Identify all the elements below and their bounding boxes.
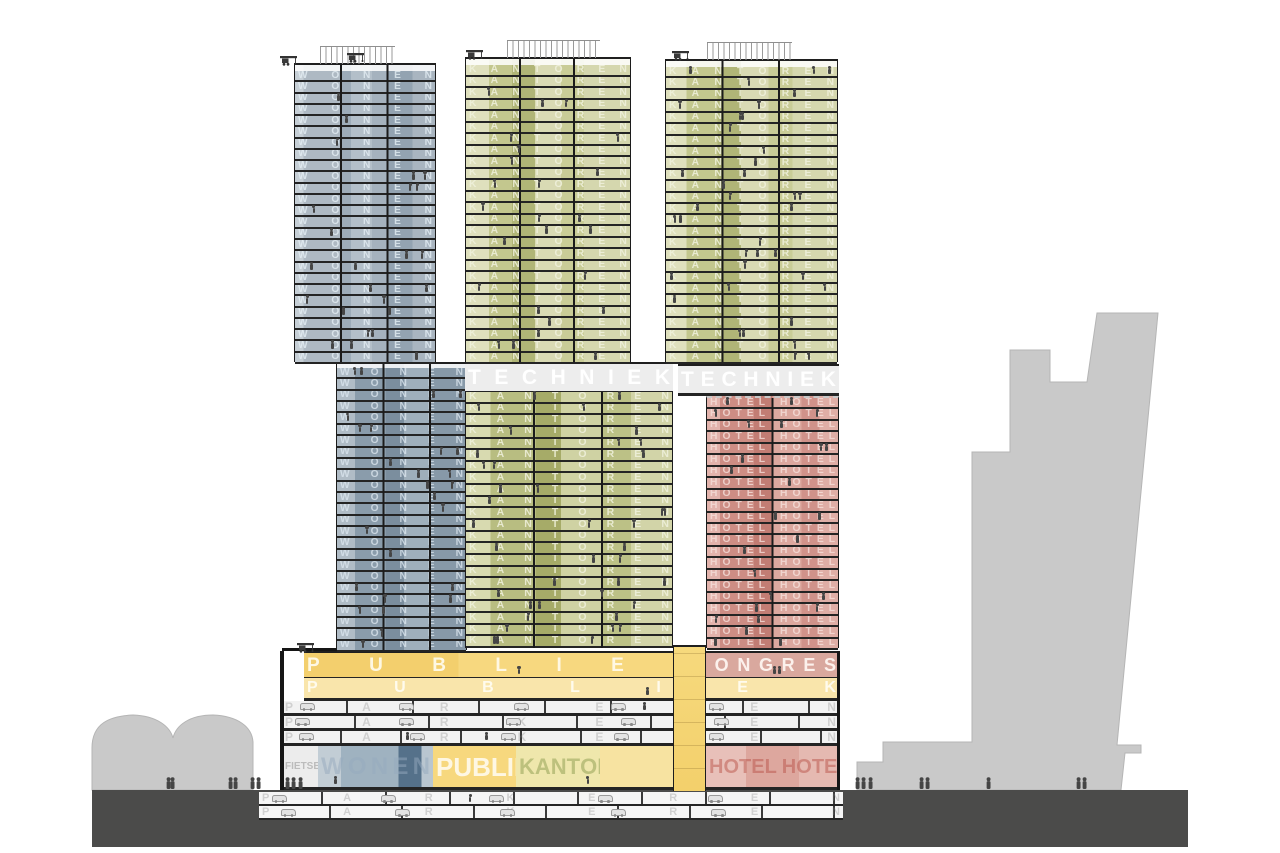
label-letter: N bbox=[425, 263, 432, 272]
label-letter: R bbox=[782, 318, 789, 327]
floor-row: HOTEL HOTEL bbox=[707, 398, 838, 409]
label-letter: R bbox=[782, 204, 789, 213]
label-letter: N bbox=[456, 504, 463, 513]
label-letter: K bbox=[669, 227, 676, 236]
label-letter: O bbox=[715, 656, 729, 674]
person-figure bbox=[818, 514, 821, 520]
label-letter: N bbox=[399, 572, 406, 581]
person-figure bbox=[617, 580, 620, 586]
label-letter: R bbox=[669, 807, 677, 818]
label-letter: H bbox=[780, 593, 787, 602]
label-letter: E bbox=[598, 318, 605, 328]
label-letter: T bbox=[552, 392, 558, 402]
zone-label: WONEN bbox=[337, 402, 466, 411]
label-letter: A bbox=[692, 273, 699, 282]
person-figure bbox=[589, 228, 592, 234]
floor-row: WONEN bbox=[337, 459, 466, 470]
label-letter: N bbox=[399, 482, 406, 491]
label-letter: P bbox=[307, 680, 318, 696]
label-letter: T bbox=[552, 450, 558, 460]
zone-label: WONEN bbox=[337, 413, 466, 422]
zone-label: KANTOREN bbox=[466, 307, 630, 317]
label-letter: W bbox=[340, 572, 350, 581]
floor-row: KANTOREN bbox=[466, 450, 672, 462]
person-figure bbox=[354, 264, 357, 270]
label-letter: E bbox=[598, 272, 605, 282]
label-letter: T bbox=[737, 318, 743, 327]
zone-label: KANTOREN bbox=[466, 567, 672, 577]
label-letter: E bbox=[634, 532, 641, 542]
person-figure bbox=[548, 320, 551, 326]
label-letter: K bbox=[469, 404, 477, 414]
label-letter: N bbox=[827, 238, 834, 247]
label-letter: E bbox=[598, 330, 605, 340]
label-letter: K bbox=[469, 613, 477, 623]
label-letter: O bbox=[554, 123, 562, 133]
label-letter: N bbox=[827, 193, 834, 202]
zone-label: WONEN bbox=[337, 493, 466, 502]
label-letter: E bbox=[804, 295, 811, 304]
label-letter: T bbox=[534, 318, 540, 328]
label-letter: R bbox=[607, 497, 615, 507]
label-letter: E bbox=[634, 590, 641, 600]
floor-row: WONEN bbox=[337, 629, 466, 640]
label-letter: O bbox=[554, 272, 562, 282]
floor-row: WONEN bbox=[337, 413, 466, 424]
label-letter: K bbox=[469, 636, 477, 646]
label-letter: N bbox=[399, 618, 406, 627]
label-letter: N bbox=[524, 462, 532, 472]
label-letter: E bbox=[634, 497, 641, 507]
label-letter: O bbox=[578, 439, 586, 449]
label-letter: K bbox=[669, 204, 676, 213]
person-figure bbox=[681, 172, 684, 178]
floor-row: HOTEL HOTEL bbox=[707, 558, 838, 569]
label-letter: E bbox=[598, 88, 605, 98]
person-figure bbox=[538, 604, 541, 610]
floor-row: WONEN bbox=[295, 229, 435, 240]
zone-label: KANTOREN bbox=[466, 520, 672, 530]
floor-row: KANTOREN bbox=[666, 341, 837, 352]
label-letter: N bbox=[619, 307, 626, 317]
car-icon bbox=[506, 718, 521, 725]
label-letter: W bbox=[298, 116, 308, 125]
label-letter: L bbox=[495, 656, 507, 675]
label-letter: N bbox=[425, 150, 432, 159]
label-letter: O bbox=[759, 295, 767, 304]
label-letter: E bbox=[394, 218, 401, 227]
label-letter: N bbox=[456, 572, 463, 581]
floor-row: KANTOREN bbox=[666, 273, 837, 284]
person-figure bbox=[251, 781, 254, 788]
label-letter: R bbox=[607, 532, 615, 542]
zone-label: HOTEL HOTEL bbox=[707, 490, 838, 499]
person-figure bbox=[1083, 781, 1086, 788]
floor-row: KANTOREN bbox=[666, 261, 837, 272]
label-letter: N bbox=[512, 249, 519, 259]
label-letter: R bbox=[782, 295, 789, 304]
label-letter: E bbox=[428, 538, 435, 547]
person-figure bbox=[825, 446, 828, 452]
label-letter: A bbox=[692, 238, 699, 247]
floor-row: PUBLIEK bbox=[433, 746, 516, 790]
person-figure bbox=[354, 370, 357, 376]
label-letter: N bbox=[714, 238, 721, 247]
zone-label: HOTEL HOTEL bbox=[707, 616, 838, 625]
zone-label: HOTEL HOTEL bbox=[707, 593, 838, 602]
label-letter: O bbox=[759, 124, 767, 133]
label-letter: P bbox=[262, 807, 269, 818]
label-letter: N bbox=[827, 227, 834, 236]
label-letter: N bbox=[827, 170, 834, 179]
label-letter: A bbox=[692, 113, 699, 122]
zone-label: WONEN bbox=[337, 470, 466, 479]
car-icon bbox=[501, 733, 516, 740]
person-figure bbox=[612, 627, 615, 633]
plinth-right-wall bbox=[837, 651, 840, 790]
label-letter: K bbox=[469, 272, 476, 282]
label-letter: N bbox=[512, 318, 519, 328]
bmu-crane-icon bbox=[672, 47, 696, 67]
floor-row: KANTOREN bbox=[466, 625, 672, 637]
label-letter: E bbox=[428, 402, 435, 411]
label-letter: K bbox=[469, 134, 476, 144]
label-letter: K bbox=[469, 318, 476, 328]
label-letter: T bbox=[806, 455, 812, 464]
car-icon bbox=[281, 809, 296, 816]
person-figure bbox=[383, 298, 386, 304]
zone-label: PARKEREN bbox=[282, 731, 839, 743]
person-figure bbox=[744, 263, 747, 269]
label-letter: N bbox=[363, 308, 370, 317]
label-letter: E bbox=[817, 616, 824, 625]
zone-label: WONEN bbox=[295, 319, 435, 328]
label-letter: E bbox=[817, 398, 824, 407]
label-letter: N bbox=[714, 341, 721, 350]
zone-label: KANTOREN bbox=[466, 404, 672, 414]
label-letter: E bbox=[800, 369, 814, 390]
label-letter: H bbox=[710, 398, 717, 407]
floor-row: HOTEL HOTEL bbox=[707, 444, 838, 455]
label-letter: T bbox=[534, 169, 540, 179]
person-figure bbox=[485, 735, 488, 741]
label-letter: T bbox=[737, 193, 743, 202]
label-letter: T bbox=[735, 604, 741, 613]
floor-row: HOTEL HOTEL bbox=[707, 570, 838, 581]
label-letter: K bbox=[669, 261, 676, 270]
label-letter: O bbox=[759, 261, 767, 270]
label-letter: N bbox=[456, 425, 463, 434]
label-letter: O bbox=[792, 593, 800, 602]
label-letter: E bbox=[817, 558, 824, 567]
label-letter: R bbox=[607, 636, 615, 646]
floor-row: HOTEL HOTEL bbox=[707, 501, 838, 512]
zone-label: WONEN bbox=[295, 285, 435, 294]
label-letter: E bbox=[747, 535, 754, 544]
zone-label: KANTOREN bbox=[466, 123, 630, 133]
label-letter: C bbox=[721, 369, 736, 390]
person-figure bbox=[594, 355, 597, 361]
zone-label: WONEN bbox=[337, 425, 466, 434]
label-letter: E bbox=[428, 413, 435, 422]
label-letter: E bbox=[598, 77, 605, 87]
label-letter: T bbox=[737, 136, 743, 145]
label-letter: P bbox=[285, 716, 293, 728]
label-letter: N bbox=[512, 134, 519, 144]
person-figure bbox=[758, 103, 761, 109]
person-figure bbox=[926, 781, 929, 788]
person-figure bbox=[451, 483, 454, 489]
floor-row: PUBLIEK bbox=[304, 653, 690, 680]
label-letter: O bbox=[331, 319, 339, 328]
label-letter: T bbox=[735, 421, 741, 430]
label-letter: E bbox=[627, 367, 641, 388]
label-letter: T bbox=[735, 558, 741, 567]
label-letter: N bbox=[619, 88, 626, 98]
background-building-right-tower bbox=[857, 313, 1158, 790]
label-letter: N bbox=[399, 641, 406, 650]
label-letter: N bbox=[363, 82, 370, 91]
label-letter: T bbox=[534, 192, 540, 202]
label-letter: N bbox=[425, 229, 432, 238]
zone-label: WONEN bbox=[295, 206, 435, 215]
floor-row: WONEN bbox=[337, 584, 466, 595]
label-letter: K bbox=[669, 136, 676, 145]
person-figure bbox=[355, 586, 358, 592]
zone-label: WONEN bbox=[337, 595, 466, 604]
plinth-publiek-floor-1: PUBLIEK bbox=[304, 651, 690, 678]
label-letter: A bbox=[491, 318, 498, 328]
person-figure bbox=[592, 557, 595, 563]
label-letter: A bbox=[692, 147, 699, 156]
label-letter: K bbox=[669, 250, 676, 259]
label-letter: N bbox=[425, 139, 432, 148]
label-letter: O bbox=[722, 604, 730, 613]
zone-label: KANTOREN bbox=[466, 555, 672, 565]
label-letter: T bbox=[552, 404, 558, 414]
architectural-section-drawing: PARKERENPARKERENPUBLIEKCONGRESPUBLIEKPAR… bbox=[0, 0, 1280, 853]
label-letter: E bbox=[598, 341, 605, 351]
zone-label: WONEN bbox=[295, 127, 435, 136]
label-letter: H bbox=[780, 524, 787, 533]
label-letter: O bbox=[792, 455, 800, 464]
zone-label: WONEN bbox=[337, 436, 466, 445]
zone-label: HOTEL HOTEL bbox=[707, 421, 838, 430]
label-letter: N bbox=[425, 296, 432, 305]
label-letter: N bbox=[714, 158, 721, 167]
label-letter: H bbox=[710, 444, 717, 453]
label-letter: E bbox=[634, 404, 641, 414]
label-letter: L bbox=[570, 680, 580, 696]
label-letter: N bbox=[661, 415, 669, 425]
person-figure bbox=[796, 537, 799, 543]
label-letter: O bbox=[759, 67, 767, 76]
person-figure bbox=[794, 343, 797, 349]
zone-label: KANTOREN bbox=[466, 226, 630, 236]
label-letter: E bbox=[817, 501, 824, 510]
label-letter: T bbox=[806, 616, 812, 625]
zone-label: WONEN bbox=[295, 263, 435, 272]
label-letter: R bbox=[607, 462, 615, 472]
label-letter: N bbox=[425, 353, 432, 362]
zone-label: KANTOREN bbox=[466, 613, 672, 623]
floor-row: KANTOREN bbox=[466, 473, 672, 485]
car-icon bbox=[299, 733, 314, 740]
label-letter: E bbox=[804, 250, 811, 259]
label-letter: O bbox=[578, 601, 586, 611]
label-letter: N bbox=[456, 402, 463, 411]
label-letter: L bbox=[759, 570, 765, 579]
label-letter: W bbox=[298, 353, 308, 362]
label-letter: R bbox=[782, 250, 789, 259]
label-letter: E bbox=[750, 701, 758, 713]
label-letter: N bbox=[661, 590, 669, 600]
label-letter: E bbox=[598, 180, 605, 190]
label-letter: O bbox=[792, 581, 800, 590]
label-letter: T bbox=[806, 558, 812, 567]
label-letter: N bbox=[399, 527, 406, 536]
label-letter: A bbox=[491, 134, 498, 144]
floor-row: KANTOREN bbox=[666, 78, 837, 89]
label-letter: R bbox=[782, 341, 789, 350]
person-figure bbox=[715, 618, 718, 624]
label-letter: L bbox=[759, 455, 765, 464]
label-letter: T bbox=[735, 398, 741, 407]
label-letter: N bbox=[619, 146, 626, 156]
label-letter: T bbox=[806, 398, 812, 407]
label-letter: K bbox=[469, 249, 476, 259]
label-letter: N bbox=[619, 180, 626, 190]
label-letter: N bbox=[619, 249, 626, 259]
floor-row: KANTOREN bbox=[466, 520, 672, 532]
label-letter: O bbox=[554, 192, 562, 202]
label-letter: R bbox=[577, 123, 584, 133]
floor-row: KANTOREN bbox=[466, 295, 630, 307]
tower-wonen-lower: WONENWONENWONENWONENWONENWONENWONENWONEN… bbox=[336, 362, 467, 650]
label-letter: N bbox=[714, 216, 721, 225]
label-letter: T bbox=[739, 757, 751, 777]
label-letter: K bbox=[469, 100, 476, 110]
person-figure bbox=[869, 781, 872, 788]
label-letter: O bbox=[578, 532, 586, 542]
person-figure bbox=[670, 275, 673, 281]
label-letter: L bbox=[829, 627, 835, 636]
person-figure bbox=[347, 415, 350, 421]
label-letter: N bbox=[765, 369, 780, 390]
label-letter bbox=[770, 581, 775, 590]
label-letter: T bbox=[735, 593, 741, 602]
zone-label: KANTOREN bbox=[666, 124, 837, 133]
label-letter: K bbox=[669, 318, 676, 327]
label-letter: L bbox=[759, 409, 765, 418]
label-letter: E bbox=[634, 625, 641, 635]
car-icon bbox=[598, 795, 613, 802]
floor-row: WONEN bbox=[295, 172, 435, 183]
label-letter: A bbox=[535, 756, 551, 778]
person-figure bbox=[739, 332, 742, 338]
label-letter: R bbox=[577, 88, 584, 98]
floor-row: HOTEL HOTEL bbox=[707, 490, 838, 501]
label-letter: T bbox=[681, 369, 694, 390]
person-figure bbox=[646, 690, 649, 696]
label-letter: K bbox=[469, 353, 476, 363]
label-letter: T bbox=[534, 226, 540, 236]
zone-label: PARKEREN bbox=[259, 792, 843, 804]
label-letter: K bbox=[469, 415, 477, 425]
person-figure bbox=[794, 195, 797, 201]
floor-row: WONEN bbox=[295, 82, 435, 93]
label-letter: E bbox=[804, 124, 811, 133]
floor-row: KANTOREN bbox=[466, 497, 672, 509]
label-letter: A bbox=[343, 807, 351, 818]
label-letter: E bbox=[817, 639, 824, 648]
label-letter: R bbox=[607, 567, 615, 577]
label-letter: A bbox=[692, 193, 699, 202]
label-letter: A bbox=[497, 532, 505, 542]
label-letter: N bbox=[363, 263, 370, 272]
label-letter: E bbox=[634, 473, 641, 483]
person-figure bbox=[816, 411, 819, 417]
label-letter: T bbox=[735, 490, 741, 499]
label-letter: N bbox=[363, 240, 370, 249]
floor-row: WONEN bbox=[295, 308, 435, 319]
person-figure bbox=[715, 411, 718, 417]
label-letter: T bbox=[534, 284, 540, 294]
zone-label: WONEN bbox=[295, 308, 435, 317]
label-letter: N bbox=[714, 67, 721, 76]
label-letter: L bbox=[829, 421, 835, 430]
label-letter: E bbox=[701, 369, 715, 390]
label-letter: N bbox=[827, 307, 834, 316]
label-letter: R bbox=[577, 100, 584, 110]
floor-row: KANTOREN bbox=[466, 578, 672, 590]
label-letter: N bbox=[524, 520, 532, 530]
label-letter: O bbox=[792, 501, 800, 510]
label-letter: A bbox=[491, 295, 498, 305]
label-letter: N bbox=[512, 226, 519, 236]
label-letter: K bbox=[469, 65, 476, 75]
label-letter: R bbox=[607, 404, 615, 414]
label-letter: T bbox=[552, 543, 558, 553]
floor-row: WONEN bbox=[337, 379, 466, 390]
label-letter: O bbox=[331, 127, 339, 136]
label-letter: T bbox=[735, 501, 741, 510]
label-letter: H bbox=[709, 757, 723, 777]
label-letter: K bbox=[669, 307, 676, 316]
label-letter: E bbox=[634, 578, 641, 588]
label-letter: A bbox=[491, 123, 498, 133]
label-letter: N bbox=[425, 82, 432, 91]
person-figure bbox=[415, 354, 418, 360]
label-letter: N bbox=[363, 127, 370, 136]
label-letter: K bbox=[469, 625, 477, 635]
car-icon bbox=[709, 703, 724, 710]
label-letter: A bbox=[692, 124, 699, 133]
floor-row: WONEN bbox=[337, 436, 466, 447]
label-letter: N bbox=[661, 636, 669, 646]
label-letter: T bbox=[534, 272, 540, 282]
label-letter: O bbox=[759, 113, 767, 122]
label-letter: W bbox=[321, 755, 344, 779]
label-letter: N bbox=[827, 353, 834, 362]
floor-row: KANTOREN bbox=[466, 284, 630, 296]
label-letter: A bbox=[692, 353, 699, 362]
label-letter: O bbox=[371, 641, 379, 650]
label-letter: A bbox=[491, 111, 498, 121]
label-letter: A bbox=[491, 157, 498, 167]
label-letter: E bbox=[817, 627, 824, 636]
person-figure bbox=[331, 343, 334, 349]
